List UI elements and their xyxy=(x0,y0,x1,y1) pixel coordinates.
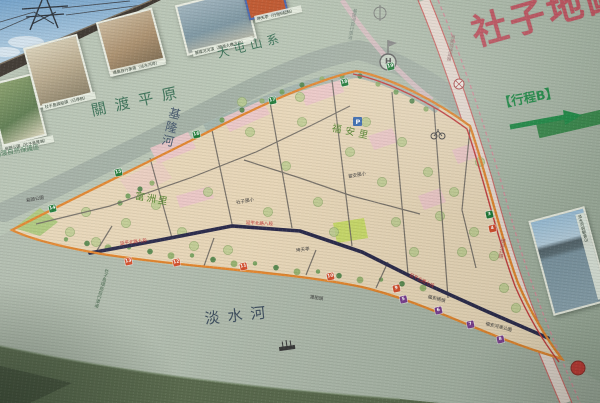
route-marker-red-4: 4 xyxy=(488,224,496,232)
route-marker-green-15: 15 xyxy=(114,168,122,176)
route-marker-green-16: 16 xyxy=(192,130,200,138)
route-marker-green-17: 17 xyxy=(268,96,276,104)
route-marker-green-3: 3 xyxy=(485,210,493,218)
route-marker-red-12: 12 xyxy=(172,258,180,266)
route-marker-green-14: 14 xyxy=(48,204,56,212)
route-marker-green-19: 19 xyxy=(386,62,394,70)
route-marker-red-11: 11 xyxy=(239,262,247,270)
route-marker-red-10: 10 xyxy=(326,272,334,280)
route-marker-purple-7: 7 xyxy=(466,320,474,328)
route-marker-red-13: 13 xyxy=(124,257,132,265)
route-marker-green-18: 18 xyxy=(340,78,348,86)
map-board-photo: 島頭公園（社子島尾端） 社子島渡船頭（已停航） 環島自行車道（淡水河岸） 基隆河… xyxy=(0,0,600,403)
route-marker-purple-6: 6 xyxy=(434,306,442,314)
route-markers-layer: 141516171819313121110945678 xyxy=(0,0,600,403)
route-marker-purple-5: 5 xyxy=(399,295,407,303)
route-marker-purple-8: 8 xyxy=(496,335,504,343)
route-marker-red-9: 9 xyxy=(392,284,400,292)
